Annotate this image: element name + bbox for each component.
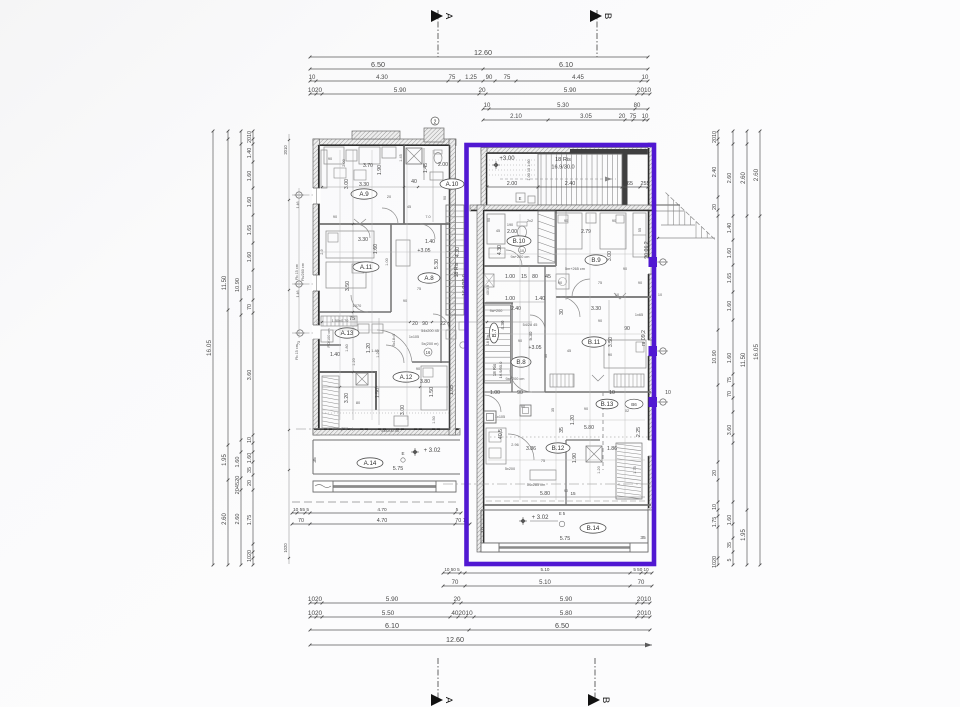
svg-text:1.60: 1.60 — [247, 171, 253, 182]
svg-text:20: 20 — [453, 596, 461, 603]
svg-text:+3.00: +3.00 — [499, 156, 515, 162]
svg-text:1.60: 1.60 — [727, 353, 733, 364]
svg-text:Fb/260 cm: Fb/260 cm — [301, 263, 305, 281]
svg-text:2.60: 2.60 — [222, 513, 228, 525]
svg-text:9a+200 cm: 9a+200 cm — [511, 255, 530, 259]
svg-text:A: A — [443, 697, 454, 704]
svg-text:70: 70 — [727, 391, 733, 397]
svg-text:1.50: 1.50 — [432, 416, 436, 423]
svg-text:10: 10 — [712, 504, 718, 510]
svg-text:75: 75 — [449, 75, 456, 81]
svg-text:1.46: 1.46 — [296, 202, 300, 209]
svg-text:B.14: B.14 — [587, 525, 600, 532]
svg-text:70: 70 — [638, 580, 645, 586]
svg-text:2.40: 2.40 — [565, 181, 576, 187]
svg-text:45: 45 — [407, 205, 411, 209]
svg-text:90: 90 — [564, 489, 568, 493]
svg-text:16.9/30.0: 16.9/30.0 — [498, 361, 503, 378]
svg-text:4.30: 4.30 — [500, 320, 505, 329]
svg-text:2.00: 2.00 — [342, 159, 346, 166]
svg-text:1.80: 1.80 — [345, 344, 349, 351]
svg-text:2.00: 2.00 — [438, 162, 448, 168]
svg-text:80: 80 — [356, 401, 360, 405]
svg-text:6.50: 6.50 — [371, 60, 385, 69]
svg-text:20: 20 — [478, 87, 486, 94]
svg-text:2.10: 2.10 — [510, 114, 522, 120]
svg-text:2.96: 2.96 — [511, 443, 518, 447]
svg-text:3.70: 3.70 — [363, 163, 373, 169]
svg-text:80: 80 — [532, 274, 538, 280]
svg-text:11.50: 11.50 — [222, 275, 228, 290]
svg-text:90: 90 — [416, 367, 420, 371]
svg-text:12.60: 12.60 — [474, 48, 492, 57]
svg-text:1.50: 1.50 — [375, 388, 381, 398]
svg-text:18 Ris: 18 Ris — [555, 157, 571, 163]
svg-text:2010: 2010 — [637, 610, 652, 617]
svg-text:75: 75 — [598, 281, 602, 285]
svg-text:90: 90 — [328, 157, 332, 161]
svg-text:3.30: 3.30 — [359, 182, 369, 188]
svg-text:m 09,2: m 09,2 — [641, 330, 647, 346]
svg-text:40,5: 40,5 — [498, 429, 504, 439]
svg-text:90: 90 — [558, 281, 562, 285]
svg-text:2: 2 — [434, 119, 437, 125]
svg-text:A.11: A.11 — [360, 264, 373, 271]
svg-text:1020: 1020 — [283, 543, 288, 553]
svg-text:5.90: 5.90 — [394, 87, 407, 94]
svg-text:16.05: 16.05 — [753, 344, 760, 360]
svg-text:5.75: 5.75 — [560, 536, 571, 542]
svg-text:B.12: B.12 — [552, 445, 565, 452]
svg-text:2.00: 2.00 — [507, 181, 518, 187]
svg-text:1.40: 1.40 — [425, 239, 435, 245]
svg-text:1.50: 1.50 — [429, 387, 435, 397]
svg-text:3.30: 3.30 — [591, 306, 601, 312]
svg-text:1.90: 1.90 — [377, 165, 383, 175]
svg-text:10: 10 — [665, 390, 671, 396]
svg-text:5.30: 5.30 — [557, 103, 569, 109]
svg-text:1.40: 1.40 — [535, 296, 545, 302]
svg-text:35: 35 — [247, 467, 253, 473]
svg-text:90: 90 — [443, 196, 447, 200]
svg-text:70: 70 — [247, 304, 253, 310]
svg-text:1.25: 1.25 — [465, 75, 477, 81]
svg-text:10: 10 — [658, 293, 662, 297]
svg-text:90: 90 — [638, 281, 642, 285]
svg-text:B.11: B.11 — [588, 339, 601, 346]
svg-text:B.9: B.9 — [591, 257, 601, 264]
svg-text:5: 5 — [727, 559, 733, 562]
svg-text:65: 65 — [627, 181, 633, 187]
svg-text:5x200: 5x200 — [505, 467, 515, 471]
svg-text:1020: 1020 — [308, 610, 323, 617]
svg-text:70: 70 — [452, 580, 459, 586]
svg-text:16.9/30.0: 16.9/30.0 — [551, 165, 574, 171]
svg-text:90: 90 — [521, 405, 525, 409]
svg-text:18 Ris: 18 Ris — [486, 335, 490, 346]
svg-text:2010: 2010 — [247, 131, 253, 143]
svg-text:5x(200 m): 5x(200 m) — [421, 342, 439, 346]
svg-text:45: 45 — [545, 274, 551, 280]
svg-text:3.80: 3.80 — [420, 379, 430, 385]
svg-text:5.50: 5.50 — [382, 610, 395, 617]
svg-text:3.00: 3.00 — [607, 251, 613, 261]
svg-text:10 50 5: 10 50 5 — [444, 567, 460, 572]
svg-text:75: 75 — [541, 459, 545, 463]
svg-text:40: 40 — [411, 179, 417, 185]
svg-text:90: 90 — [623, 267, 627, 271]
svg-text:10: 10 — [642, 114, 649, 120]
svg-text:15: 15 — [570, 491, 576, 496]
svg-text:2010: 2010 — [637, 87, 652, 94]
svg-text:90: 90 — [486, 75, 493, 81]
svg-text:55: 55 — [638, 228, 642, 232]
svg-text:B: B — [602, 13, 613, 19]
svg-text:5.10: 5.10 — [541, 567, 550, 572]
svg-text:2.60: 2.60 — [235, 514, 241, 525]
svg-text:2.00: 2.00 — [507, 229, 517, 235]
svg-text:90: 90 — [608, 353, 612, 357]
svg-text:1.50x0.70: 1.50x0.70 — [332, 319, 349, 323]
svg-text:75: 75 — [727, 377, 733, 383]
svg-text:30: 30 — [544, 354, 548, 358]
svg-text:5m+265 cm: 5m+265 cm — [565, 267, 585, 271]
svg-text:2010: 2010 — [712, 131, 718, 143]
svg-text:45: 45 — [567, 349, 571, 353]
svg-text:1.40: 1.40 — [727, 223, 733, 234]
svg-text:6.50: 6.50 — [555, 621, 569, 630]
svg-text:3.20: 3.20 — [344, 393, 350, 403]
svg-text:10: 10 — [309, 75, 316, 81]
svg-text:1.60: 1.60 — [727, 301, 733, 312]
svg-text:75: 75 — [349, 316, 355, 322]
svg-text:1.60: 1.60 — [247, 252, 253, 263]
svg-text:11.50: 11.50 — [741, 352, 747, 367]
svg-text:1.20: 1.20 — [352, 358, 356, 365]
svg-text:+3.05: +3.05 — [528, 345, 541, 351]
svg-text:35: 35 — [559, 427, 565, 433]
svg-text:75: 75 — [504, 75, 511, 81]
svg-text:18 Ris: 18 Ris — [492, 363, 497, 376]
svg-text:4.30: 4.30 — [376, 75, 388, 81]
svg-text:B.8: B.8 — [516, 359, 526, 366]
svg-text:2.60: 2.60 — [727, 173, 733, 184]
svg-text:5.80: 5.80 — [584, 425, 594, 431]
svg-text:9a+200 cm: 9a+200 cm — [506, 377, 525, 381]
svg-text:A.13: A.13 — [341, 330, 354, 337]
svg-text:10.90: 10.90 — [235, 278, 241, 292]
svg-text:2.40: 2.40 — [511, 306, 521, 312]
svg-text:20: 20 — [712, 470, 718, 476]
svg-text:1020: 1020 — [247, 550, 253, 562]
svg-text:402010: 402010 — [451, 610, 473, 617]
svg-text:1.20: 1.20 — [376, 350, 380, 357]
svg-text:54x200 45: 54x200 45 — [381, 429, 399, 433]
svg-text:2.60: 2.60 — [753, 168, 760, 181]
svg-text:10: 10 — [642, 75, 649, 81]
svg-text:+3.05: +3.05 — [417, 248, 430, 254]
svg-text:35: 35 — [727, 542, 733, 548]
svg-text:7.0: 7.0 — [425, 215, 430, 219]
svg-text:1020: 1020 — [712, 556, 718, 568]
svg-text:1.00: 1.00 — [385, 258, 389, 265]
svg-text:3.60: 3.60 — [247, 370, 253, 381]
svg-text:20: 20 — [387, 195, 391, 199]
svg-text:45: 45 — [496, 229, 500, 233]
svg-text:1.75: 1.75 — [247, 515, 253, 526]
svg-text:B.10: B.10 — [513, 238, 526, 245]
svg-text:PO/100 cm: PO/100 cm — [327, 329, 331, 348]
svg-text:3.50: 3.50 — [345, 281, 351, 291]
svg-text:12.60: 12.60 — [446, 635, 464, 644]
svg-text:90: 90 — [333, 215, 337, 219]
svg-text:2x2: 2x2 — [527, 219, 533, 223]
svg-text:5.90: 5.90 — [560, 596, 573, 603]
svg-text:75: 75 — [630, 114, 637, 120]
svg-text:90: 90 — [598, 319, 602, 323]
svg-text:90: 90 — [584, 407, 588, 411]
svg-text:1.65: 1.65 — [247, 225, 253, 236]
svg-text:70: 70 — [298, 518, 304, 524]
svg-text:10 55 5: 10 55 5 — [293, 507, 309, 513]
svg-text:5x(200 m): 5x(200 m) — [336, 427, 354, 431]
svg-text:1020: 1020 — [308, 87, 323, 94]
svg-text:1x65: 1x65 — [635, 313, 643, 317]
svg-text:E: E — [401, 451, 404, 456]
svg-text:02: 02 — [625, 409, 629, 413]
svg-text:255: 255 — [641, 181, 650, 187]
svg-text:10: 10 — [609, 390, 615, 396]
svg-text:1.00: 1.00 — [490, 390, 500, 396]
svg-text:5.75: 5.75 — [393, 466, 404, 472]
svg-text:90: 90 — [403, 299, 407, 303]
svg-text:54/28 45: 54/28 45 — [523, 323, 538, 327]
svg-text:1.40: 1.40 — [247, 148, 253, 159]
svg-text:B6: B6 — [631, 402, 637, 407]
svg-text:1.75: 1.75 — [712, 517, 718, 528]
svg-text:1.75: 1.75 — [633, 466, 637, 473]
svg-text:10: 10 — [484, 103, 491, 109]
svg-text:10: 10 — [480, 527, 486, 533]
svg-text:1.60: 1.60 — [727, 515, 733, 526]
svg-text:1.60: 1.60 — [247, 453, 253, 464]
svg-text:30: 30 — [559, 309, 565, 315]
svg-text:1.40: 1.40 — [330, 352, 340, 358]
svg-text:18 Ris: 18 Ris — [454, 262, 460, 277]
svg-text:2010: 2010 — [283, 145, 288, 155]
svg-text:E 5: E 5 — [559, 511, 566, 516]
svg-text:1.05: 1.05 — [449, 385, 455, 395]
svg-text:90: 90 — [612, 219, 616, 223]
svg-text:1.20: 1.20 — [597, 466, 601, 473]
svg-text:35: 35 — [312, 457, 318, 463]
svg-text:5.80: 5.80 — [560, 610, 573, 617]
svg-text:4.45: 4.45 — [572, 75, 584, 81]
svg-text:75: 75 — [247, 285, 253, 291]
svg-text:3.86: 3.86 — [526, 446, 536, 452]
svg-text:35: 35 — [551, 408, 555, 412]
svg-text:1070: 1070 — [353, 304, 361, 308]
svg-text:5: 5 — [456, 507, 459, 513]
svg-text:80: 80 — [634, 103, 641, 109]
svg-text:1020: 1020 — [308, 596, 323, 603]
svg-text:2.9: 2.9 — [320, 249, 324, 254]
svg-text:6.10: 6.10 — [385, 621, 399, 630]
svg-text:3.60: 3.60 — [727, 425, 733, 436]
svg-text:1.60: 1.60 — [247, 197, 253, 208]
svg-text:1.95: 1.95 — [741, 529, 747, 541]
svg-text:A.12: A.12 — [400, 374, 413, 381]
svg-text:5 50 10: 5 50 10 — [633, 567, 649, 572]
svg-text:1.60: 1.60 — [727, 248, 733, 259]
svg-text:20: 20 — [619, 114, 626, 120]
svg-text:1.86: 1.86 — [607, 446, 617, 452]
svg-text:2.40: 2.40 — [712, 167, 718, 178]
svg-text:+ 3.02: + 3.02 — [424, 448, 442, 454]
svg-text:1.95: 1.95 — [222, 454, 228, 466]
svg-text:Fb 15 cm: Fb 15 cm — [295, 264, 299, 280]
svg-text:9a+200: 9a+200 — [490, 309, 503, 313]
svg-text:90: 90 — [518, 339, 522, 343]
svg-text:5x18=0: 5x18=0 — [392, 334, 396, 347]
svg-text:15: 15 — [521, 274, 527, 280]
svg-text:A.8: A.8 — [424, 275, 434, 282]
svg-text:B.7: B.7 — [492, 329, 498, 337]
svg-text:20: 20 — [712, 204, 718, 210]
svg-text:4.30: 4.30 — [455, 247, 461, 257]
svg-text:54x200 45: 54x200 45 — [421, 329, 439, 333]
svg-text:5.90: 5.90 — [386, 596, 399, 603]
svg-text:5.90: 5.90 — [564, 87, 577, 94]
svg-text:40/3,9: 40/3,9 — [486, 285, 490, 296]
svg-text:10: 10 — [615, 293, 619, 297]
svg-text:10: 10 — [520, 249, 524, 253]
svg-text:90 06,2: 90 06,2 — [644, 241, 650, 258]
svg-text:5.30: 5.30 — [434, 259, 440, 269]
svg-text:75: 75 — [417, 287, 421, 291]
svg-text:B: B — [600, 697, 611, 703]
svg-text:1.46: 1.46 — [296, 291, 300, 298]
svg-text:4.70: 4.70 — [377, 507, 387, 513]
svg-text:204520: 204520 — [235, 476, 241, 495]
svg-text:1.00: 1.00 — [505, 296, 515, 302]
svg-text:1x105: 1x105 — [409, 335, 419, 339]
svg-text:1.00: 1.00 — [505, 274, 515, 280]
svg-text:1.90: 1.90 — [572, 453, 578, 463]
svg-text:20: 20 — [247, 480, 253, 486]
svg-text:35: 35 — [640, 535, 646, 541]
svg-text:16.05: 16.05 — [206, 340, 213, 356]
svg-text:54x285 cm: 54x285 cm — [527, 483, 546, 487]
svg-text:2.79: 2.79 — [581, 229, 591, 235]
svg-text:5.10: 5.10 — [539, 580, 551, 586]
svg-text:3.05: 3.05 — [580, 114, 592, 120]
svg-text:1.45: 1.45 — [423, 163, 429, 173]
svg-text:10: 10 — [247, 437, 253, 443]
svg-text:2.25: 2.25 — [636, 427, 642, 437]
svg-text:4.70: 4.70 — [377, 518, 388, 524]
svg-text:A: A — [443, 13, 454, 20]
svg-text:B.13: B.13 — [601, 401, 614, 408]
svg-text:A.14: A.14 — [364, 460, 377, 467]
svg-text:90: 90 — [487, 218, 491, 222]
svg-text:4.30: 4.30 — [497, 245, 503, 255]
svg-text:E: E — [519, 196, 522, 201]
svg-text:3.30: 3.30 — [358, 237, 368, 243]
svg-text:190: 190 — [507, 223, 513, 227]
svg-text:16: 16 — [426, 350, 431, 355]
svg-text:Fb 15 cm: Fb 15 cm — [295, 344, 299, 360]
svg-text:3.00: 3.00 — [344, 179, 350, 189]
svg-text:90: 90 — [564, 219, 568, 223]
svg-text:5.80: 5.80 — [540, 491, 550, 497]
svg-text:1.45: 1.45 — [399, 154, 403, 161]
svg-text:A.10: A.10 — [446, 181, 459, 188]
svg-text:1.60: 1.60 — [235, 457, 241, 468]
svg-text:1.65: 1.65 — [727, 273, 733, 284]
svg-text:2010: 2010 — [637, 596, 652, 603]
svg-text:10.90: 10.90 — [712, 350, 718, 364]
svg-text:2.60: 2.60 — [741, 172, 747, 184]
svg-text:6.10: 6.10 — [559, 60, 573, 69]
svg-text:A.9: A.9 — [359, 191, 369, 198]
svg-text:1.60: 1.60 — [373, 244, 379, 254]
svg-text:+ 3.02: + 3.02 — [532, 515, 550, 521]
